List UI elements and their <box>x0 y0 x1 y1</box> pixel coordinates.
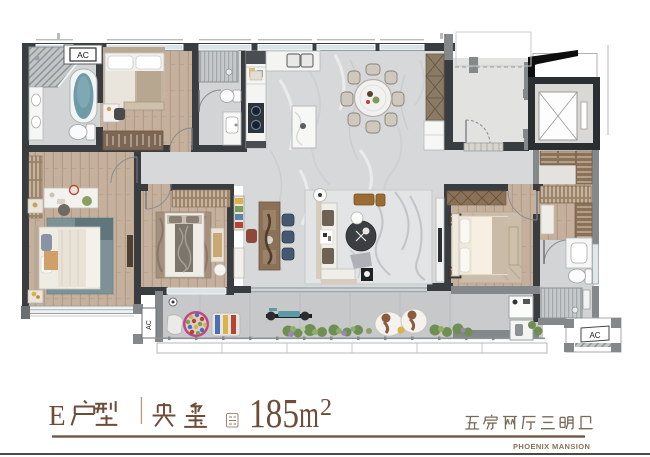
svg-text:2: 2 <box>320 395 332 421</box>
svg-text:m: m <box>299 394 319 436</box>
svg-text:AC: AC <box>589 331 600 340</box>
svg-text:AC: AC <box>77 50 89 60</box>
svg-text:AC: AC <box>146 320 153 330</box>
svg-text:E: E <box>49 401 66 432</box>
svg-text:185: 185 <box>249 390 299 436</box>
svg-text:PHOENIX MANSION: PHOENIX MANSION <box>513 442 590 451</box>
